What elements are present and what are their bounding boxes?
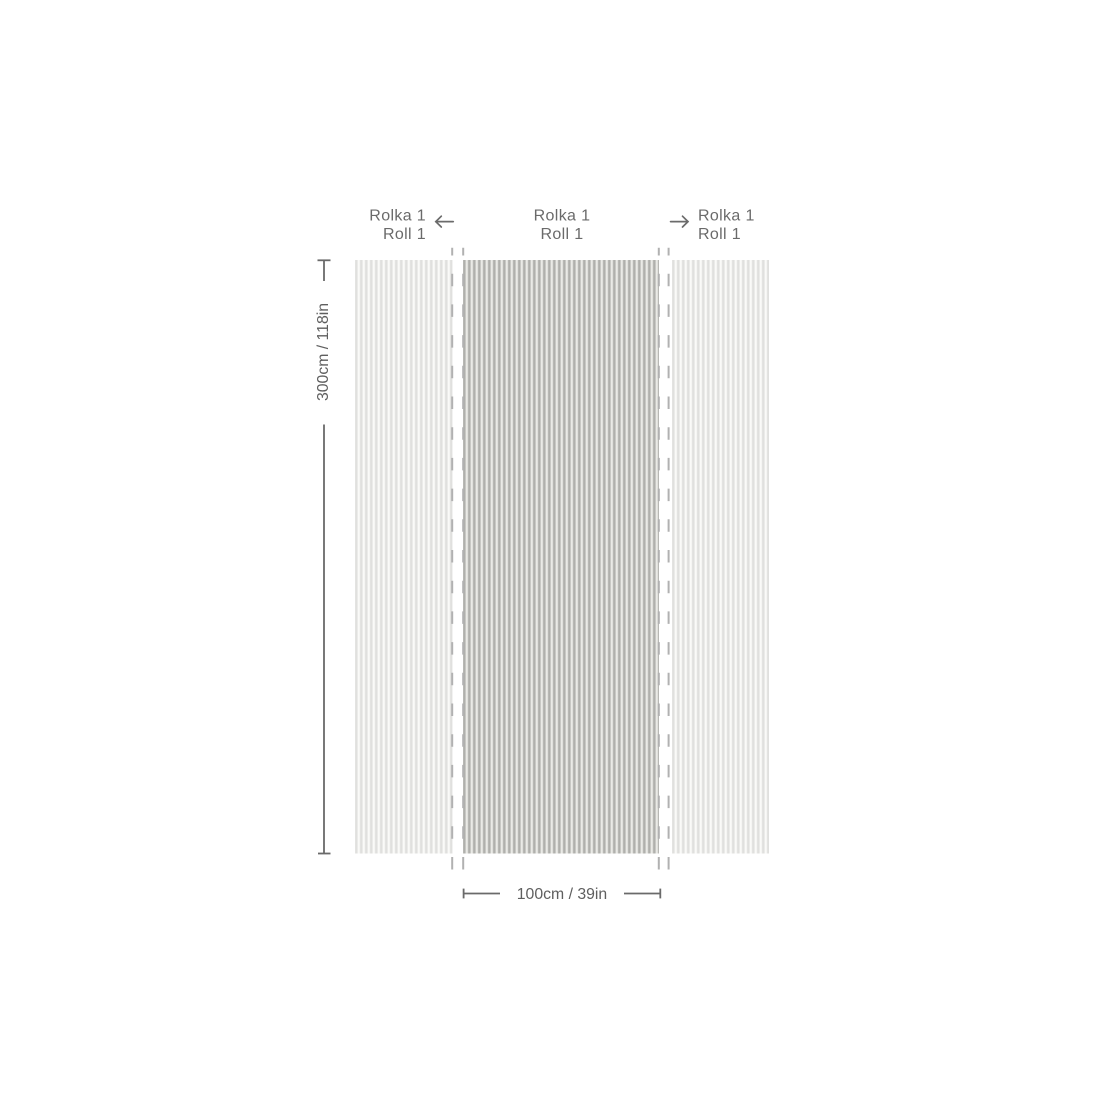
svg-text:300cm / 118in: 300cm / 118in bbox=[315, 303, 332, 401]
svg-text:Roll 1: Roll 1 bbox=[383, 226, 426, 243]
svg-text:Rolka 1: Rolka 1 bbox=[698, 208, 755, 225]
svg-text:Roll 1: Roll 1 bbox=[540, 226, 583, 243]
svg-text:Roll 1: Roll 1 bbox=[698, 226, 741, 243]
svg-text:Rolka 1: Rolka 1 bbox=[369, 208, 426, 225]
svg-text:100cm / 39in: 100cm / 39in bbox=[517, 886, 607, 903]
svg-text:Rolka 1: Rolka 1 bbox=[534, 208, 591, 225]
